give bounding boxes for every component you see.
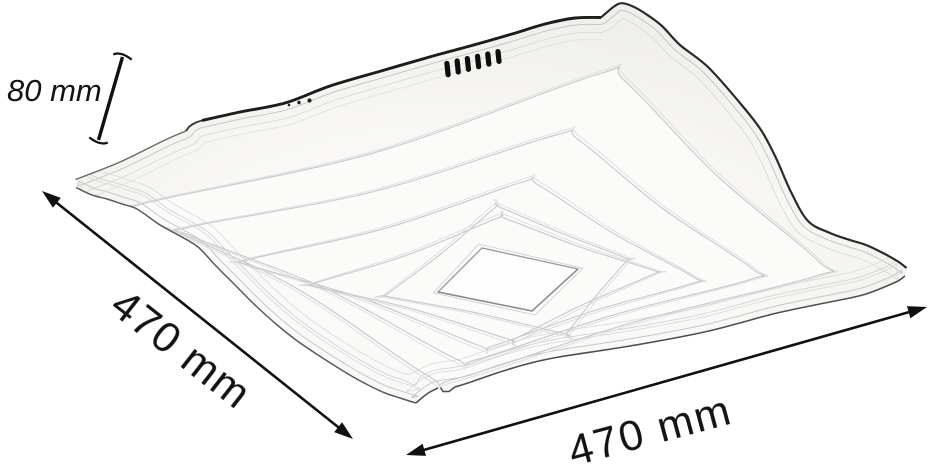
svg-text:80 mm: 80 mm [7, 73, 102, 108]
